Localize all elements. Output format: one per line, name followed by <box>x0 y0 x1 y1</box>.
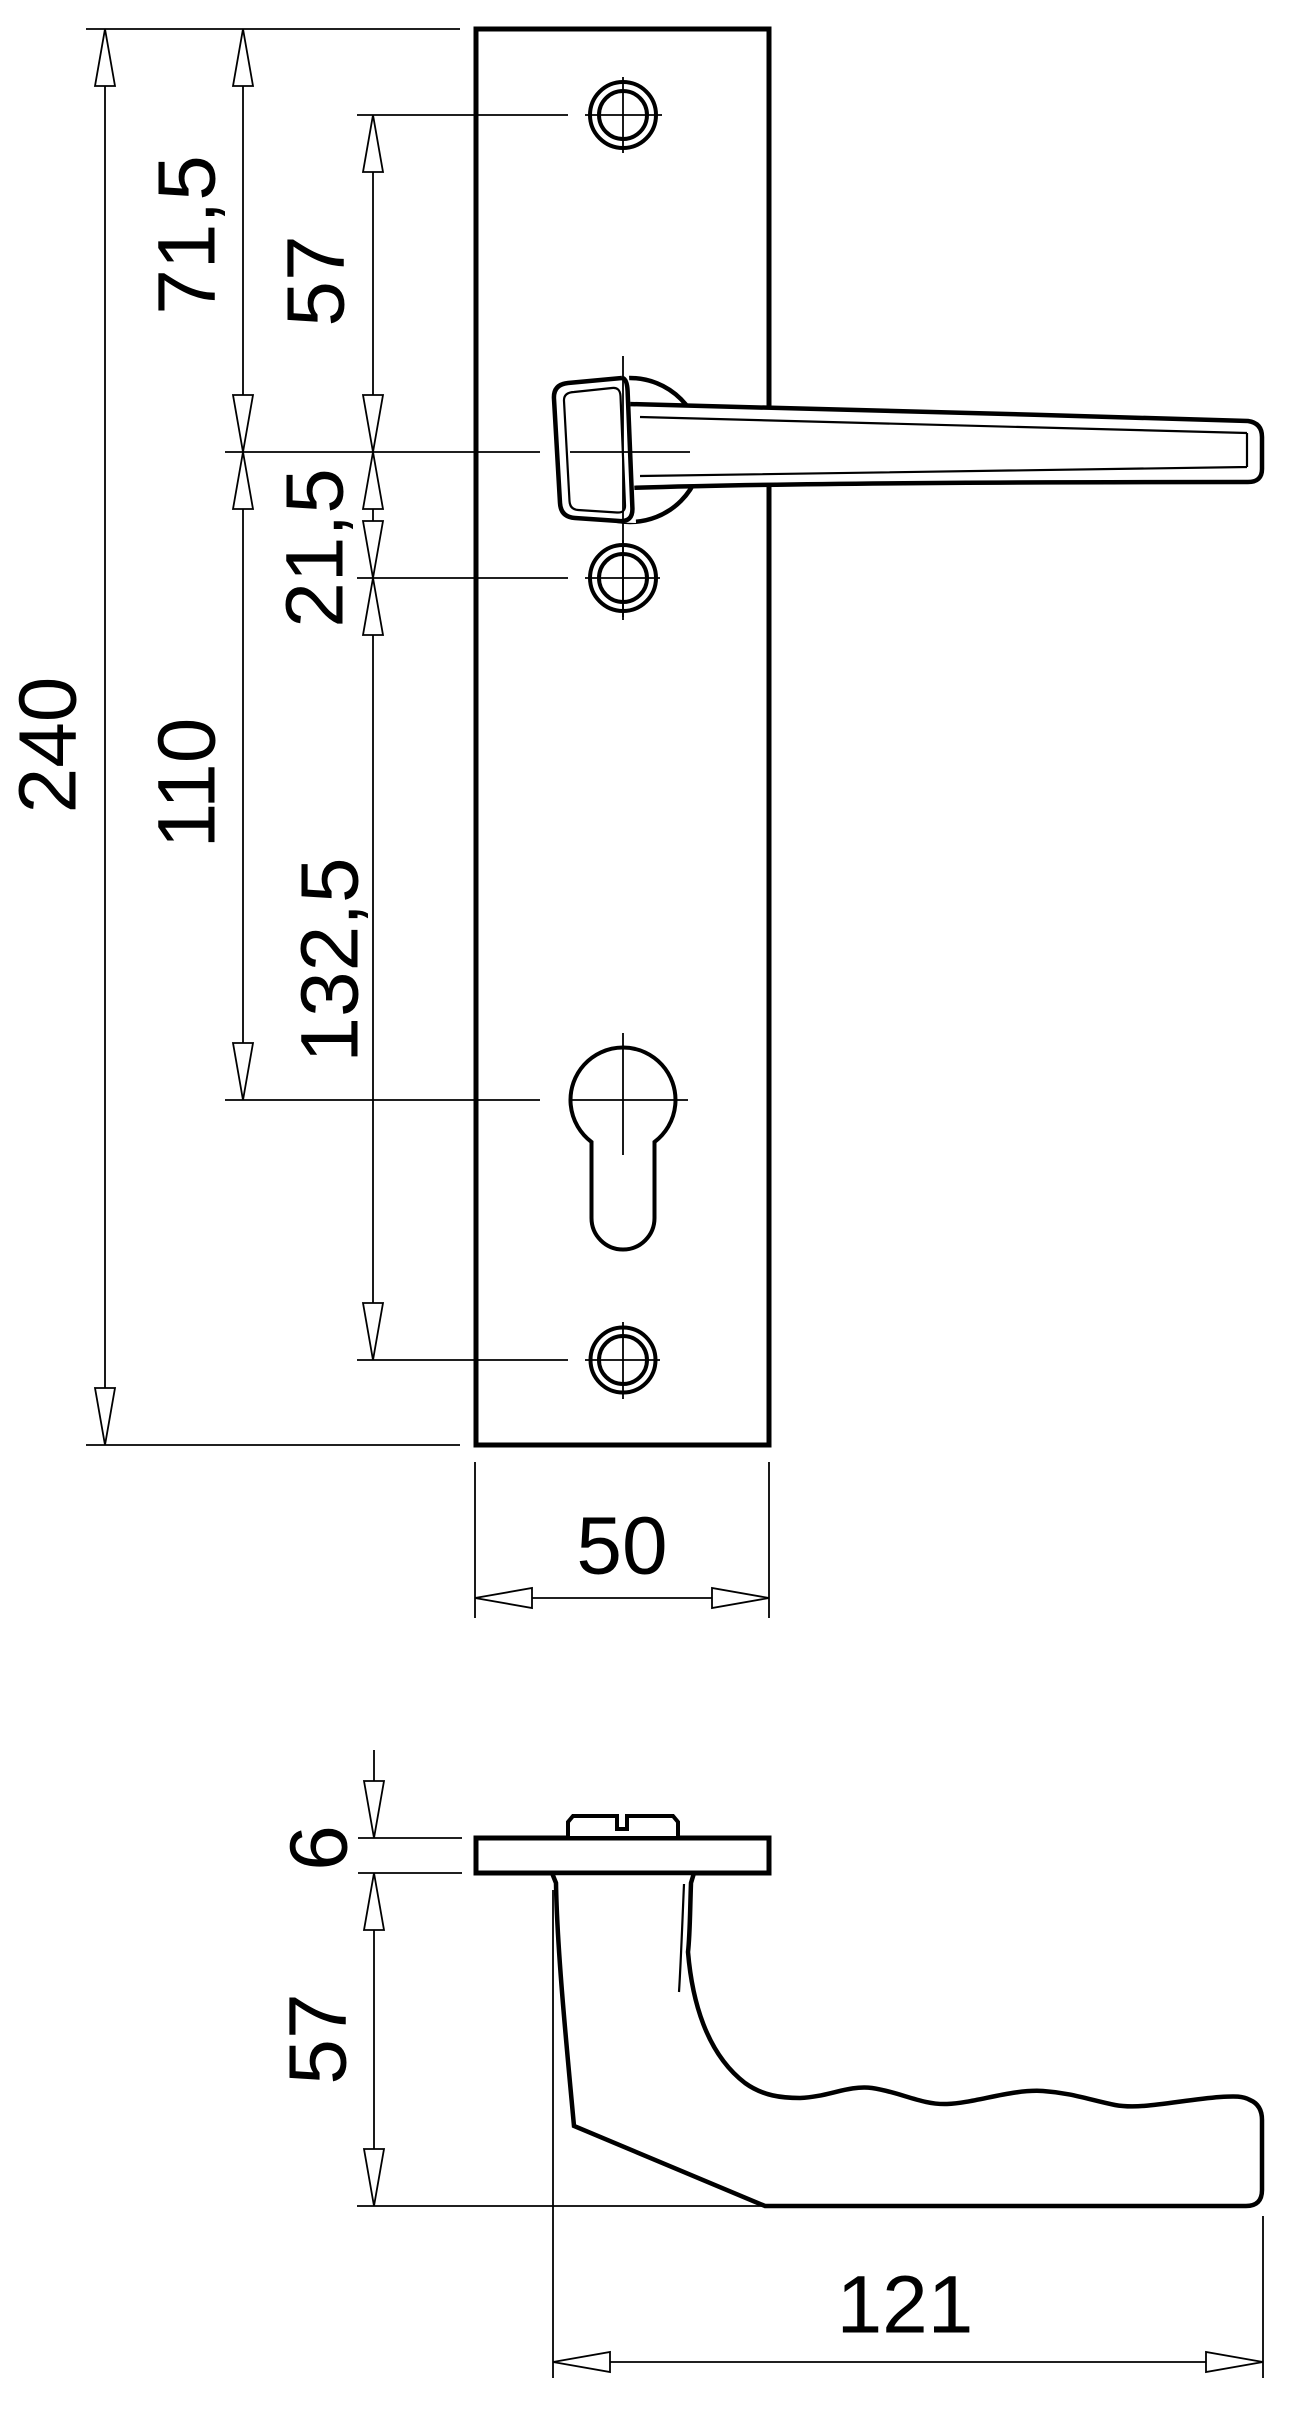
dim-label-projection: 57 <box>273 1993 364 2084</box>
dim-label-plate-width: 50 <box>576 1501 667 1592</box>
dim-label-top-to-handle: 71,5 <box>142 155 233 315</box>
dim-label-plate-thickness: 6 <box>274 1825 365 1871</box>
handle-side-outline <box>552 1873 1262 2206</box>
dim-arrow <box>95 1388 115 1445</box>
dim-arrow <box>364 2149 384 2206</box>
dim-arrow <box>363 452 383 509</box>
dim-arrow <box>363 115 383 172</box>
spindle-nut <box>568 1816 678 1838</box>
bottom-screw-hole <box>585 1322 660 1399</box>
dim-label-handle-length: 121 <box>837 2260 974 2351</box>
dim-arrow <box>364 1781 384 1838</box>
dim-arrow <box>712 1588 769 1608</box>
top-screw-hole <box>585 77 662 153</box>
dim-arrow <box>233 452 253 509</box>
door-handle-technical-drawing: 240 71,5 57 21,5 110 132,5 50 <box>0 0 1309 2413</box>
dim-label-screw-to-screw: 132,5 <box>285 857 376 1062</box>
dim-arrow <box>95 29 115 86</box>
dim-arrow <box>363 1303 383 1360</box>
euro-cylinder-hole <box>570 1033 688 1250</box>
side-view <box>476 1816 1262 2206</box>
drawing-sheet: 240 71,5 57 21,5 110 132,5 50 <box>0 0 1309 2413</box>
dim-arrow <box>475 1588 532 1608</box>
dim-label-handle-to-cylinder: 110 <box>142 718 233 849</box>
front-dimensions: 240 71,5 57 21,5 110 132,5 50 <box>3 29 770 1618</box>
dim-label-handle-to-lower-screw: 21,5 <box>270 468 361 628</box>
dim-arrow <box>233 29 253 86</box>
backplate-edge <box>476 1838 769 1873</box>
dim-arrow <box>233 1043 253 1100</box>
dim-arrow <box>553 2352 610 2372</box>
backplate-outline <box>476 29 769 1445</box>
lower-screw-hole <box>585 540 660 617</box>
dim-arrow <box>363 521 383 578</box>
dim-arrow <box>233 395 253 452</box>
front-view <box>476 29 1262 1445</box>
dim-label-total-height: 240 <box>3 677 94 814</box>
dim-arrow <box>363 578 383 635</box>
dim-arrows <box>364 1781 1263 2372</box>
dim-arrow <box>364 1873 384 1930</box>
dim-arrow <box>1206 2352 1263 2372</box>
dim-arrow <box>363 395 383 452</box>
dim-label-screw-to-handle: 57 <box>271 235 362 326</box>
